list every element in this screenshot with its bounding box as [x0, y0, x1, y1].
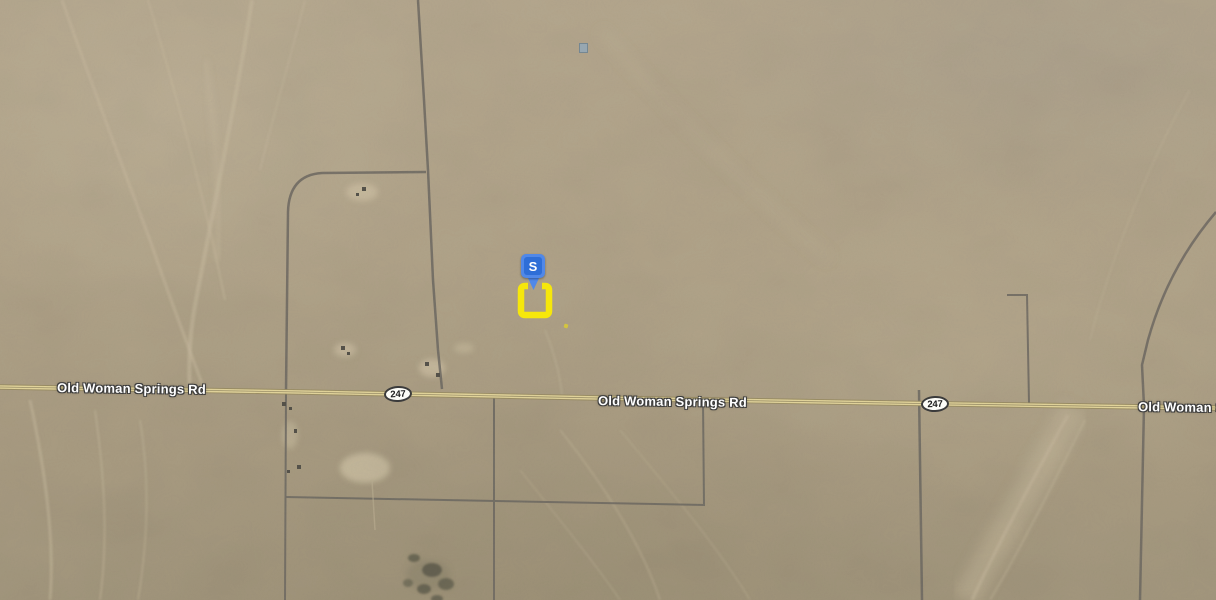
- road-label-old-woman-springs-rd-center: Old Woman Springs Rd: [598, 393, 747, 410]
- parcel-boundary-path[interactable]: [521, 286, 549, 315]
- road-label-old-woman-springs-rd-left: Old Woman Springs Rd: [57, 380, 206, 397]
- satellite-map-viewport[interactable]: S Old Woman Springs Rd Old Woman Springs…: [0, 0, 1216, 600]
- parcel-outline[interactable]: [0, 0, 1216, 600]
- road-label-old-woman-springs-rd-right: Old Woman Springs Rd: [1138, 399, 1216, 416]
- saved-place-marker[interactable]: S: [521, 254, 545, 278]
- s-marker-icon: S: [524, 257, 542, 275]
